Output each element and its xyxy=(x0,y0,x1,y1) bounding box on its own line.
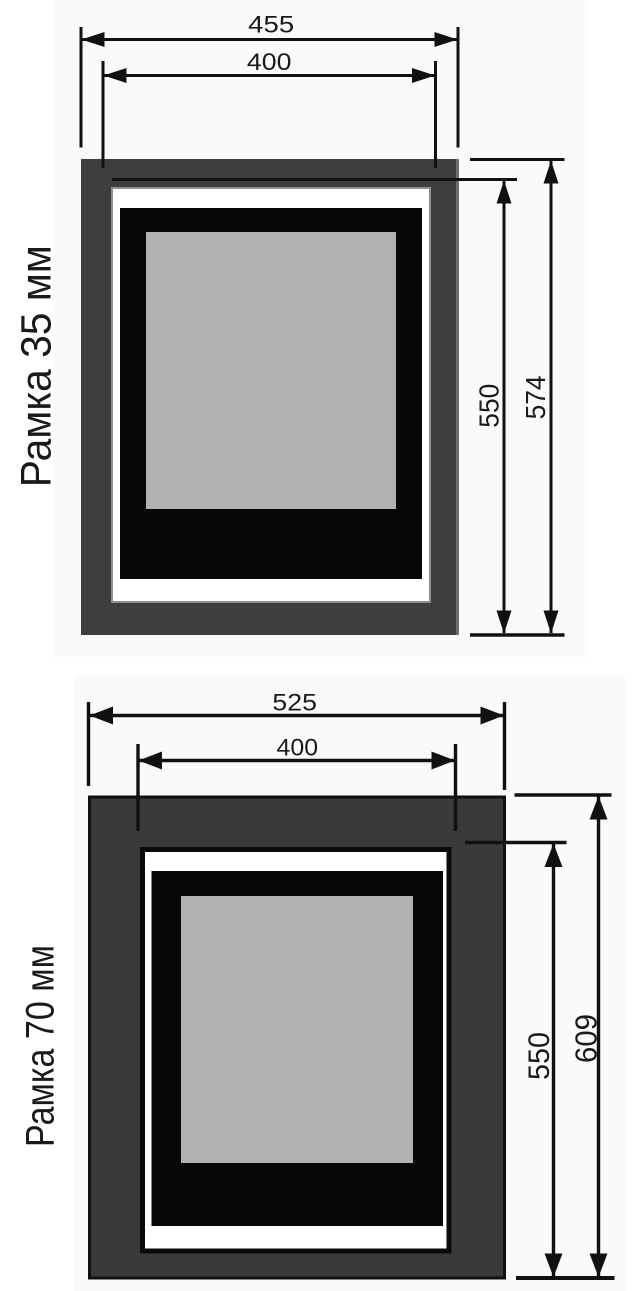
svg-text:609: 609 xyxy=(569,1014,604,1063)
svg-text:Рамка 35 мм: Рамка 35 мм xyxy=(13,245,61,487)
svg-text:400: 400 xyxy=(247,49,292,76)
svg-text:574: 574 xyxy=(520,375,551,419)
svg-text:550: 550 xyxy=(474,384,505,428)
svg-text:550: 550 xyxy=(523,1032,556,1080)
svg-text:525: 525 xyxy=(272,690,317,717)
svg-text:Рамка 70 мм: Рамка 70 мм xyxy=(19,945,63,1147)
svg-text:400: 400 xyxy=(277,735,319,762)
svg-text:455: 455 xyxy=(248,12,294,39)
